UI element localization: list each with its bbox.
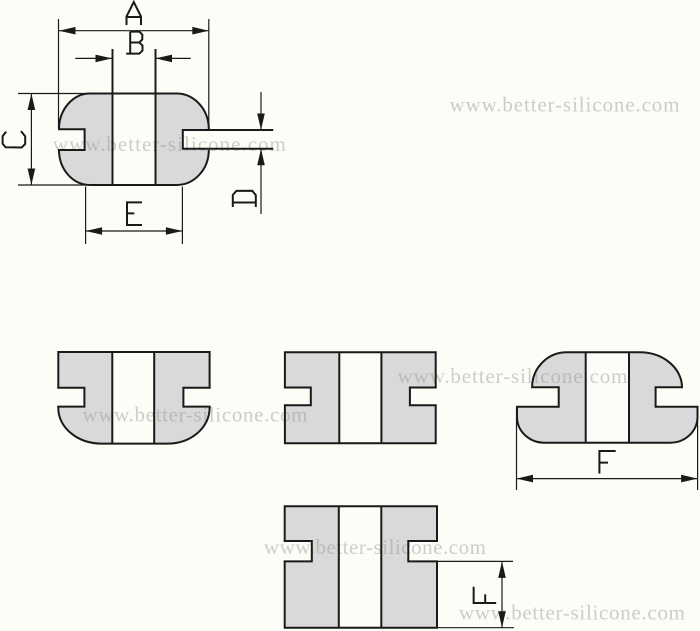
svg-text:www.better-silicone.com: www.better-silicone.com [398, 364, 628, 388]
svg-text:www.better-silicone.com: www.better-silicone.com [264, 535, 486, 559]
svg-text:www.better-silicone.com: www.better-silicone.com [53, 132, 286, 156]
svg-text:www.better-silicone.com: www.better-silicone.com [450, 93, 680, 117]
svg-text:www.better-silicone.com: www.better-silicone.com [459, 601, 685, 625]
